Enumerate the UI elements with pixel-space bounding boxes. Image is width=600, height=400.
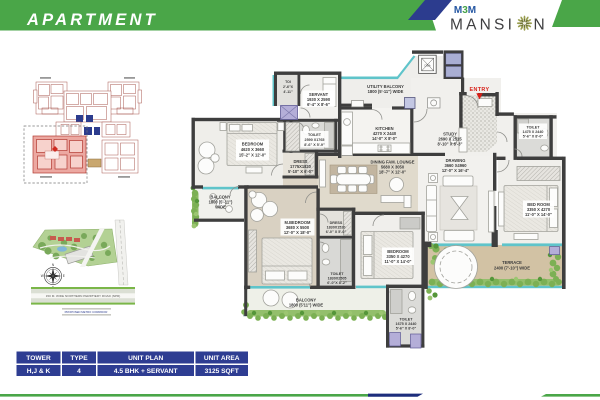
svg-text:TOWER: TOWER bbox=[26, 355, 51, 362]
svg-text:WIDE: WIDE bbox=[215, 205, 226, 210]
svg-text:11'-0" X 14'-0": 11'-0" X 14'-0" bbox=[385, 259, 412, 264]
svg-text:TOILET: TOILET bbox=[399, 318, 413, 322]
svg-text:8'-10" X 8'-3": 8'-10" X 8'-3" bbox=[438, 142, 463, 147]
svg-text:150 M. WIDE NORTHERN PERIPHERY: 150 M. WIDE NORTHERN PERIPHERY ROAD (NPR… bbox=[46, 294, 121, 298]
svg-text:6'-4" X 8'-6": 6'-4" X 8'-6" bbox=[307, 102, 330, 107]
svg-text:W: W bbox=[41, 274, 44, 278]
svg-text:TOILET: TOILET bbox=[308, 133, 322, 137]
svg-text:UNIT PLAN: UNIT PLAN bbox=[128, 355, 163, 362]
svg-text:H,J & K: H,J & K bbox=[27, 368, 51, 375]
svg-text:2400 (7'-10") WIDE: 2400 (7'-10") WIDE bbox=[494, 266, 530, 271]
svg-text:1800 (5'11") WIDE: 1800 (5'11") WIDE bbox=[289, 303, 324, 308]
svg-text:5'-6" X 8'-0": 5'-6" X 8'-0" bbox=[523, 135, 544, 139]
svg-text:18'-7" X 12'-0": 18'-7" X 12'-0" bbox=[379, 170, 406, 175]
svg-text:DRESS: DRESS bbox=[330, 221, 343, 225]
svg-text:M3M: M3M bbox=[454, 5, 476, 16]
svg-text:PROPOSED METRO CORRIDOR: PROPOSED METRO CORRIDOR bbox=[65, 310, 108, 314]
svg-text:8'-6" X 5'-9": 8'-6" X 5'-9" bbox=[304, 143, 325, 147]
svg-text:APARTMENT: APARTMENT bbox=[26, 11, 158, 29]
svg-text:5'-10" X 6'-0": 5'-10" X 6'-0" bbox=[288, 169, 313, 174]
svg-text:TOILET: TOILET bbox=[330, 272, 344, 276]
svg-text:DBA: DBA bbox=[425, 63, 431, 67]
svg-text:6'-0"X 8'-2": 6'-0"X 8'-2" bbox=[327, 281, 347, 285]
svg-text:4.5 BHK + SERVANT: 4.5 BHK + SERVANT bbox=[114, 368, 178, 375]
svg-text:15'-2" X 12'-0": 15'-2" X 12'-0" bbox=[239, 153, 266, 158]
svg-text:E: E bbox=[63, 274, 65, 278]
svg-text:3125 SQFT: 3125 SQFT bbox=[205, 368, 239, 375]
svg-text:1830X1520: 1830X1520 bbox=[327, 226, 346, 230]
svg-text:MANSI: MANSI bbox=[450, 17, 515, 34]
svg-text:TOILET: TOILET bbox=[526, 126, 540, 130]
svg-text:1830X2505: 1830X2505 bbox=[328, 277, 347, 281]
svg-text:11'-0" X 14'-0": 11'-0" X 14'-0" bbox=[525, 212, 552, 217]
svg-text:4620 X 3660: 4620 X 3660 bbox=[241, 147, 265, 152]
svg-text:2'-6"X: 2'-6"X bbox=[283, 85, 294, 89]
svg-text:1675 X 2440: 1675 X 2440 bbox=[396, 322, 417, 326]
svg-text:2590 X1765: 2590 X1765 bbox=[305, 138, 325, 142]
svg-text:BEDROOM: BEDROOM bbox=[242, 142, 264, 147]
svg-text:1475 X 2440: 1475 X 2440 bbox=[523, 130, 544, 134]
svg-text:5'-6" X 8'-0": 5'-6" X 8'-0" bbox=[396, 327, 417, 331]
svg-text:1800 (5'-11") WIDE: 1800 (5'-11") WIDE bbox=[368, 89, 404, 94]
svg-text:TOI: TOI bbox=[285, 80, 291, 84]
svg-text:N: N bbox=[534, 17, 545, 34]
svg-text:ENTRY: ENTRY bbox=[469, 87, 489, 93]
svg-text:4: 4 bbox=[77, 368, 81, 375]
svg-text:6'-0" X 5'-0": 6'-0" X 5'-0" bbox=[326, 230, 347, 234]
svg-text:4'-11": 4'-11" bbox=[283, 90, 293, 94]
svg-text:TYPE: TYPE bbox=[70, 355, 88, 362]
svg-text:UNIT AREA: UNIT AREA bbox=[204, 355, 240, 362]
svg-text:12'-0" X 18'-0": 12'-0" X 18'-0" bbox=[284, 230, 311, 235]
svg-text:12'-0" X 16'-4": 12'-0" X 16'-4" bbox=[442, 168, 469, 173]
svg-text:TERRACE: TERRACE bbox=[502, 260, 522, 265]
svg-text:14'-0" X 8'-0": 14'-0" X 8'-0" bbox=[372, 136, 397, 141]
